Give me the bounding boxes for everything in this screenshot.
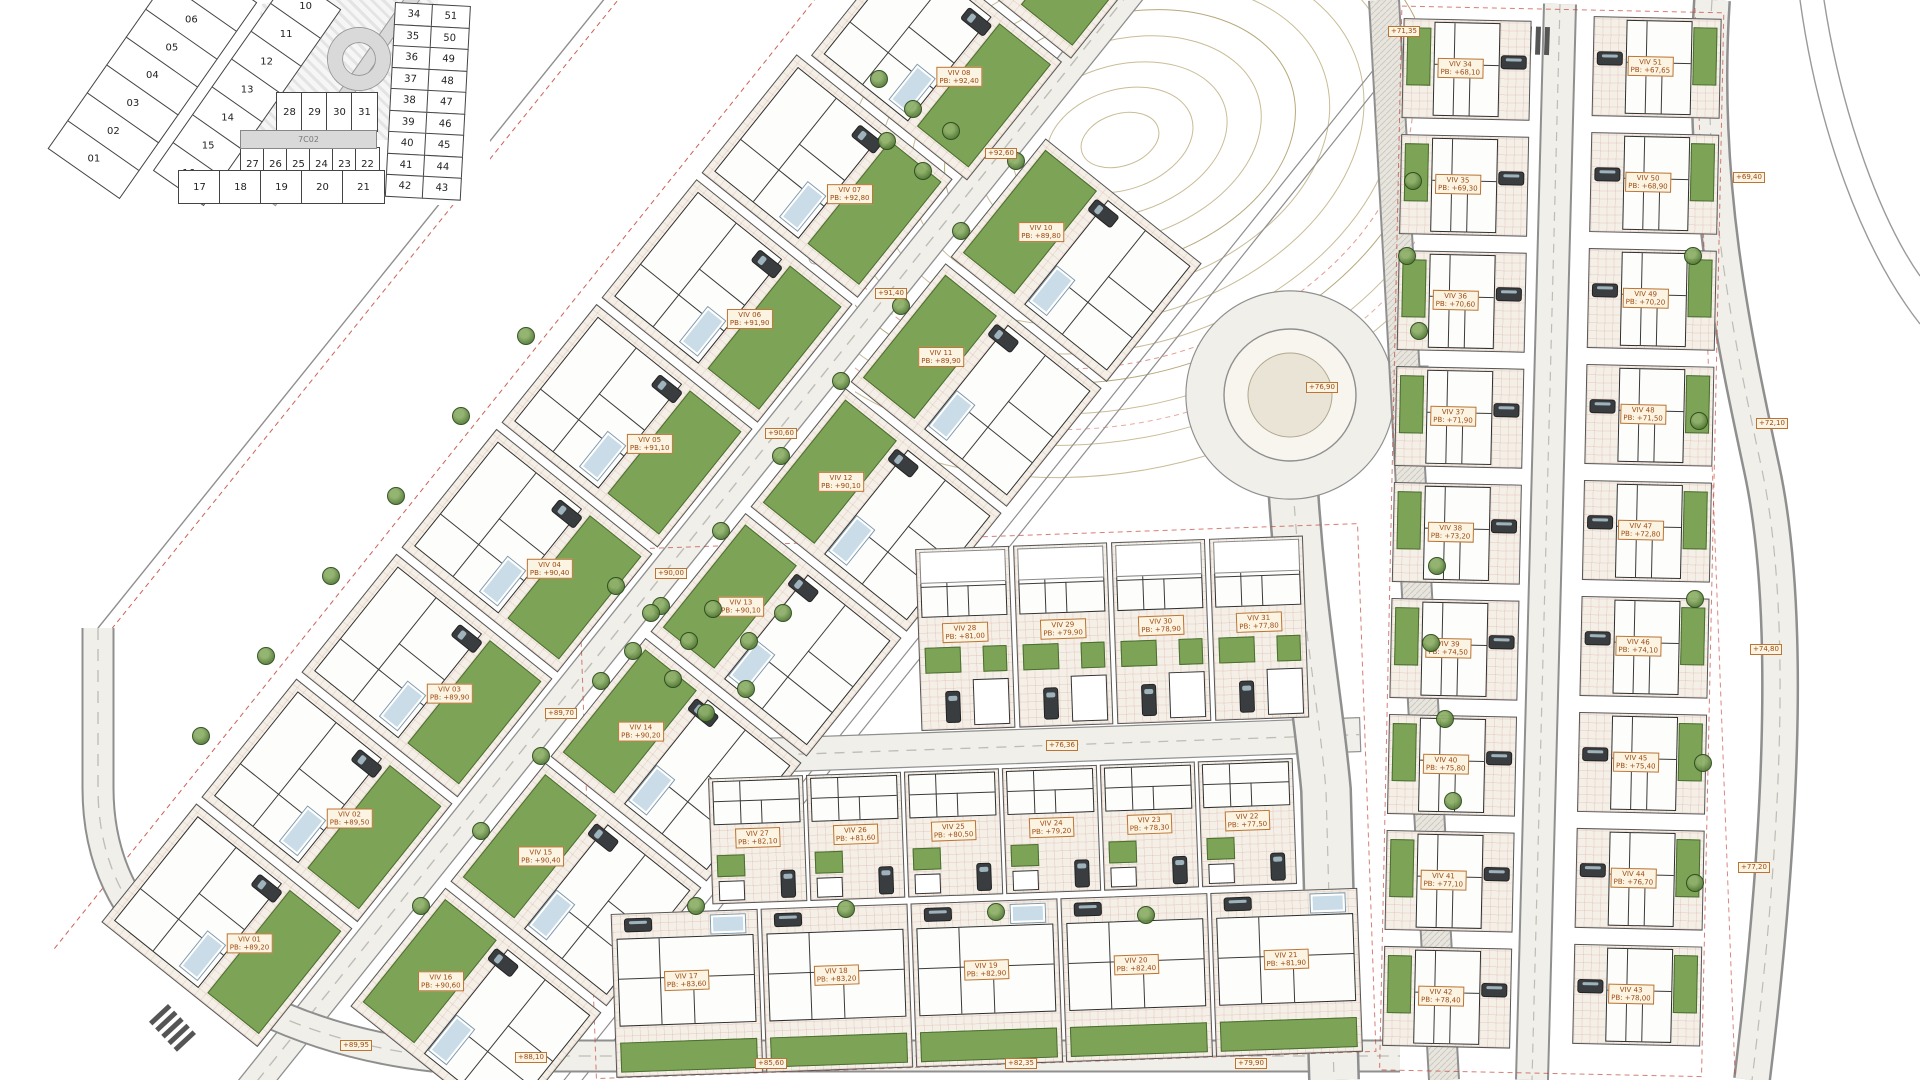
villa-elevation: PB: +74,10 xyxy=(1618,646,1658,655)
villa-elevation: PB: +79,20 xyxy=(1032,827,1072,836)
villa-label: VIV 34PB: +68,10 xyxy=(1437,58,1483,79)
villa-elevation: PB: +82,10 xyxy=(738,837,778,846)
tree-icon xyxy=(322,567,340,585)
car-icon xyxy=(1496,287,1522,302)
tree-icon xyxy=(952,222,970,240)
car-icon xyxy=(1493,403,1519,418)
villa-elevation: PB: +90,20 xyxy=(621,732,661,740)
villa-label: VIV 10PB: +89,80 xyxy=(1018,222,1064,242)
car-icon xyxy=(1597,51,1623,66)
tree-icon xyxy=(772,447,790,465)
villa-label: VIV 22PB: +77,50 xyxy=(1224,810,1270,832)
car-icon xyxy=(1587,515,1613,530)
tree-icon xyxy=(942,122,960,140)
villa-building xyxy=(1104,765,1192,812)
villa-card: VIV 29PB: +79,90 xyxy=(1013,542,1113,727)
villa-label: VIV 08PB: +92,40 xyxy=(936,67,982,87)
tree-icon xyxy=(892,297,910,315)
tree-icon xyxy=(1444,792,1462,810)
villa-label: VIV 13PB: +90,10 xyxy=(718,597,764,617)
villa-elevation: PB: +90,40 xyxy=(530,569,570,577)
road-elevation-tag: +90,00 xyxy=(655,568,687,579)
villa-garden xyxy=(1011,844,1040,867)
tree-icon xyxy=(452,407,470,425)
villa-label: VIV 01PB: +89,20 xyxy=(227,933,273,953)
tree-icon xyxy=(704,600,722,618)
villa-name: VIV 08 xyxy=(939,69,979,77)
villa-garden xyxy=(1070,1022,1208,1057)
villa-label: VIV 14PB: +90,20 xyxy=(618,722,664,742)
villa-garden xyxy=(620,1038,758,1073)
tree-icon xyxy=(740,632,758,650)
tree-icon xyxy=(687,897,705,915)
villa-card: VIV 18PB: +83,20 xyxy=(761,904,914,1073)
key-plan-lot: 42 xyxy=(385,174,425,199)
villa-elevation: PB: +78,00 xyxy=(1611,994,1651,1003)
villa-garden xyxy=(815,851,844,874)
villa-garden xyxy=(983,645,1008,672)
lot-number: 11 xyxy=(280,29,293,40)
villa-name: VIV 12 xyxy=(821,474,861,482)
villa-garden xyxy=(913,847,942,870)
villa-label: VIV 07PB: +92,80 xyxy=(827,184,873,204)
car-icon xyxy=(1486,751,1512,766)
tree-icon xyxy=(1428,557,1446,575)
villa-garden xyxy=(1023,643,1060,670)
villa-card: VIV 47PB: +72,80 xyxy=(1582,480,1712,583)
key-plan-road-loop xyxy=(328,28,390,90)
villa-garden xyxy=(1206,837,1235,860)
car-icon xyxy=(1074,902,1102,917)
villa-label: VIV 48PB: +71,50 xyxy=(1620,404,1666,425)
villa-name: VIV 06 xyxy=(730,311,770,319)
villa-pool xyxy=(711,914,746,933)
car-icon xyxy=(1223,897,1251,912)
villa-elevation: PB: +83,60 xyxy=(667,980,707,989)
villa-card: VIV 43PB: +78,00 xyxy=(1572,944,1702,1047)
villa-label: VIV 15PB: +90,40 xyxy=(518,846,564,866)
car-icon xyxy=(1172,856,1188,885)
villa-elevation: PB: +90,60 xyxy=(421,981,461,989)
key-plan-lot: 29 xyxy=(301,92,328,132)
tree-icon xyxy=(878,132,896,150)
villa-elevation: PB: +92,80 xyxy=(830,194,870,202)
villa-card: VIV 46PB: +74,10 xyxy=(1579,596,1709,699)
key-plan-lot: 21 xyxy=(342,170,385,204)
car-icon xyxy=(1074,859,1090,888)
tree-icon xyxy=(832,372,850,390)
villa-name: VIV 01 xyxy=(230,935,270,943)
car-icon xyxy=(878,866,894,895)
villa-building xyxy=(1202,761,1290,808)
road-elevation-tag: +88,10 xyxy=(515,1052,547,1063)
villa-label: VIV 26PB: +81,60 xyxy=(832,824,878,846)
villa-elevation: PB: +69,30 xyxy=(1438,184,1478,193)
villa-garage xyxy=(1208,863,1235,884)
villa-label: VIV 27PB: +82,10 xyxy=(735,827,781,849)
villa-label: VIV 05PB: +91,10 xyxy=(627,434,673,454)
tree-icon xyxy=(1436,710,1454,728)
villa-garage xyxy=(817,877,844,898)
road-elevation-tag: +91,40 xyxy=(875,288,907,299)
villa-card: VIV 31PB: +77,80 xyxy=(1209,536,1309,721)
villa-label: VIV 21PB: +81,90 xyxy=(1263,949,1309,971)
villa-elevation: PB: +77,50 xyxy=(1228,820,1268,829)
villa-label: VIV 24PB: +79,20 xyxy=(1028,817,1074,839)
lot-number: 06 xyxy=(185,14,198,25)
lot-number: 02 xyxy=(107,126,120,137)
villa-label: VIV 19PB: +82,90 xyxy=(963,959,1009,981)
villa-elevation: PB: +92,40 xyxy=(939,77,979,85)
key-plan-lot: 20 xyxy=(301,170,344,204)
tree-icon xyxy=(607,577,625,595)
villa-card: VIV 50PB: +68,90 xyxy=(1589,132,1719,235)
tree-icon xyxy=(712,522,730,540)
villa-elevation: PB: +75,40 xyxy=(1616,762,1656,771)
villa-label: VIV 29PB: +79,90 xyxy=(1040,618,1086,640)
villa-elevation: PB: +89,20 xyxy=(230,943,270,951)
villa-name: VIV 11 xyxy=(921,349,961,357)
villa-label: VIV 47PB: +72,80 xyxy=(1618,520,1664,541)
villa-garage xyxy=(1012,870,1039,891)
road-elevation-tag: +89,70 xyxy=(545,708,577,719)
villa-label: VIV 45PB: +75,40 xyxy=(1613,752,1659,773)
villa-label: VIV 36PB: +70,60 xyxy=(1433,290,1479,311)
villa-elevation: PB: +83,20 xyxy=(817,974,857,983)
key-plan-lot: 28 xyxy=(276,92,303,132)
villa-garden xyxy=(1080,642,1105,669)
villa-label: VIV 40PB: +75,80 xyxy=(1423,754,1469,775)
villa-garage xyxy=(1267,668,1305,715)
villa-card: VIV 25PB: +80,50 xyxy=(904,768,1003,897)
key-plan-lot: 43 xyxy=(422,176,462,201)
villa-garden xyxy=(770,1033,908,1068)
car-icon xyxy=(1589,399,1615,414)
villa-garage xyxy=(719,880,746,901)
villa-name: VIV 03 xyxy=(430,686,470,694)
car-icon xyxy=(924,907,952,922)
villa-pergola xyxy=(1213,539,1300,574)
villa-elevation: PB: +81,60 xyxy=(836,834,876,843)
villa-elevation: PB: +67,65 xyxy=(1631,66,1671,75)
tree-icon xyxy=(914,162,932,180)
tree-icon xyxy=(1410,322,1428,340)
villa-label: VIV 03PB: +89,90 xyxy=(427,684,473,704)
villa-garden xyxy=(1220,1017,1358,1052)
car-icon xyxy=(1484,867,1510,882)
car-icon xyxy=(1491,519,1517,534)
tree-icon xyxy=(592,672,610,690)
villa-card: VIV 42PB: +78,40 xyxy=(1382,946,1512,1049)
car-icon xyxy=(1481,983,1507,998)
villa-elevation: PB: +89,50 xyxy=(330,819,370,827)
villa-pool xyxy=(1011,904,1046,923)
villa-garage xyxy=(973,678,1011,725)
villa-elevation: PB: +68,90 xyxy=(1628,182,1668,191)
villa-elevation: PB: +78,90 xyxy=(1141,625,1181,634)
villa-garden xyxy=(1692,27,1717,85)
villa-label: VIV 50PB: +68,90 xyxy=(1625,172,1671,193)
villa-label: VIV 31PB: +77,80 xyxy=(1236,611,1282,633)
key-plan-lot: 17 xyxy=(178,170,221,204)
villa-elevation: PB: +77,10 xyxy=(1423,880,1463,889)
villa-label: VIV 28PB: +81,00 xyxy=(942,622,988,644)
villa-name: VIV 16 xyxy=(421,973,461,981)
key-plan-road-label: 7C02 xyxy=(240,130,377,149)
villa-name: VIV 10 xyxy=(1021,224,1061,232)
lot-number: 12 xyxy=(260,57,273,68)
villa-card: VIV 41PB: +77,10 xyxy=(1385,830,1515,933)
villa-name: VIV 05 xyxy=(630,436,670,444)
villa-card: VIV 30PB: +78,90 xyxy=(1111,539,1211,724)
villa-name: VIV 02 xyxy=(330,811,370,819)
villa-card: VIV 34PB: +68,10 xyxy=(1402,18,1532,121)
villa-garden xyxy=(1397,491,1422,549)
tree-icon xyxy=(837,900,855,918)
villa-elevation: PB: +90,10 xyxy=(821,482,861,490)
villa-label: VIV 23PB: +78,30 xyxy=(1126,813,1172,835)
villa-label: VIV 38PB: +73,20 xyxy=(1428,522,1474,543)
villa-label: VIV 49PB: +70,20 xyxy=(1623,288,1669,309)
villa-card: VIV 23PB: +78,30 xyxy=(1100,761,1199,890)
villa-garden xyxy=(1683,491,1708,549)
site-plan: 01020304050607 16151413121110 2829303127… xyxy=(0,0,1920,1080)
tree-icon xyxy=(642,604,660,622)
car-icon xyxy=(774,912,802,927)
villa-elevation: PB: +90,10 xyxy=(721,607,761,615)
villa-label: VIV 51PB: +67,65 xyxy=(1627,56,1673,77)
road-elevation-tag: +89,95 xyxy=(340,1040,372,1051)
villa-label: VIV 12PB: +90,10 xyxy=(818,472,864,492)
villa-elevation: PB: +89,80 xyxy=(1021,232,1061,240)
villa-label: VIV 16PB: +90,60 xyxy=(418,971,464,991)
road-elevation-tag: +92,60 xyxy=(985,148,1017,159)
car-icon xyxy=(1577,979,1603,994)
villa-elevation: PB: +75,80 xyxy=(1426,764,1466,773)
roundabout-elevation-tag: +76,90 xyxy=(1306,382,1338,393)
tree-icon xyxy=(664,670,682,688)
villa-label: VIV 20PB: +82,40 xyxy=(1113,954,1159,976)
villa-garden xyxy=(1687,259,1712,317)
tree-icon xyxy=(987,903,1005,921)
lot-number: 14 xyxy=(221,112,234,123)
road-elevation-tag: +76,36 xyxy=(1046,740,1078,751)
lot-number: 03 xyxy=(127,98,140,109)
villa-garden xyxy=(1401,259,1426,317)
road-elevation-tag: +90,60 xyxy=(765,428,797,439)
car-icon xyxy=(976,863,992,892)
villa-name: VIV 07 xyxy=(830,186,870,194)
villa-label: VIV 37PB: +71,90 xyxy=(1430,406,1476,427)
villa-garden xyxy=(1399,375,1424,433)
lot-number: 04 xyxy=(146,70,159,81)
villa-garage xyxy=(1071,674,1109,721)
villa-elevation: PB: +68,10 xyxy=(1440,68,1480,77)
villa-label: VIV 42PB: +78,40 xyxy=(1418,986,1464,1007)
road-elevation-tag: +77,20 xyxy=(1738,862,1770,873)
villa-elevation: PB: +90,40 xyxy=(521,856,561,864)
car-icon xyxy=(1239,680,1255,713)
villa-name: VIV 15 xyxy=(521,848,561,856)
villa-garage xyxy=(914,873,941,894)
car-icon xyxy=(1501,55,1527,70)
villa-pool xyxy=(1310,893,1345,912)
villa-garden xyxy=(717,854,746,877)
key-plan-lot: 31 xyxy=(351,92,378,132)
villa-elevation: PB: +70,60 xyxy=(1436,300,1476,309)
villa-card: VIV 45PB: +75,40 xyxy=(1577,712,1707,815)
car-icon xyxy=(1594,167,1620,182)
villa-elevation: PB: +82,90 xyxy=(967,969,1007,978)
car-icon xyxy=(1582,747,1608,762)
key-plan: 01020304050607 16151413121110 2829303127… xyxy=(90,0,490,205)
villa-label: VIV 44PB: +76,70 xyxy=(1610,868,1656,889)
villa-garden xyxy=(1389,839,1414,897)
tree-icon xyxy=(257,647,275,665)
villa-elevation: PB: +79,90 xyxy=(1043,628,1083,637)
villa-card: VIV 28PB: +81,00 xyxy=(915,546,1015,731)
villa-label: VIV 35PB: +69,30 xyxy=(1435,174,1481,195)
villa-card: VIV 27PB: +82,10 xyxy=(708,775,807,904)
villa-building xyxy=(712,778,800,825)
lot-number: 13 xyxy=(241,85,254,96)
road-elevation-tag: +71,35 xyxy=(1388,26,1420,37)
villa-pergola xyxy=(1115,542,1202,577)
villa-garden xyxy=(925,647,962,674)
villa-garage xyxy=(1169,671,1207,718)
car-icon xyxy=(1498,171,1524,186)
road-elevation-tag: +85,60 xyxy=(755,1058,787,1069)
villa-garden xyxy=(1394,607,1419,665)
villa-card: VIV 22PB: +77,50 xyxy=(1198,758,1297,887)
car-icon xyxy=(1580,863,1606,878)
villa-elevation: PB: +77,80 xyxy=(1239,621,1279,630)
tree-icon xyxy=(1398,247,1416,265)
villa-card: VIV 37PB: +71,90 xyxy=(1394,366,1524,469)
road-elevation-tag: +79,90 xyxy=(1235,1058,1267,1069)
key-plan-lot: 19 xyxy=(260,170,303,204)
villa-elevation: PB: +81,90 xyxy=(1266,959,1306,968)
villa-card: VIV 26PB: +81,60 xyxy=(806,772,905,901)
tree-icon xyxy=(1690,412,1708,430)
villa-label: VIV 25PB: +80,50 xyxy=(930,820,976,842)
road-elevation-tag: +74,80 xyxy=(1750,644,1782,655)
villa-card: VIV 19PB: +82,90 xyxy=(910,898,1063,1067)
villa-card: VIV 39PB: +74,50 xyxy=(1389,598,1519,701)
tree-icon xyxy=(904,100,922,118)
villa-elevation: PB: +78,30 xyxy=(1130,823,1170,832)
villa-card: VIV 24PB: +79,20 xyxy=(1002,765,1101,894)
villa-label: VIV 11PB: +89,90 xyxy=(918,347,964,367)
villa-garden xyxy=(1387,955,1412,1013)
tree-icon xyxy=(1694,754,1712,772)
villa-label: VIV 17PB: +83,60 xyxy=(663,970,709,992)
villa-label: VIV 30PB: +78,90 xyxy=(1138,615,1184,637)
villa-elevation: PB: +73,20 xyxy=(1431,532,1471,541)
villa-garden xyxy=(1690,143,1715,201)
car-icon xyxy=(1141,684,1157,717)
villa-card: VIV 51PB: +67,65 xyxy=(1592,16,1722,119)
villa-elevation: PB: +81,00 xyxy=(945,632,985,641)
lot-number: 15 xyxy=(202,140,215,151)
villa-garden xyxy=(1276,635,1301,662)
tree-icon xyxy=(192,727,210,745)
villa-garden xyxy=(920,1027,1058,1062)
villa-label: VIV 43PB: +78,00 xyxy=(1608,984,1654,1005)
villa-card: VIV 44PB: +76,70 xyxy=(1575,828,1705,931)
villa-name: VIV 04 xyxy=(530,561,570,569)
tree-icon xyxy=(387,487,405,505)
road-elevation-tag: +69,40 xyxy=(1733,172,1765,183)
tree-icon xyxy=(870,70,888,88)
villa-elevation: PB: +91,10 xyxy=(630,444,670,452)
villa-building xyxy=(908,771,996,818)
tree-icon xyxy=(1422,634,1440,652)
tree-icon xyxy=(737,680,755,698)
car-icon xyxy=(624,918,652,933)
tree-icon xyxy=(697,704,715,722)
villa-card: VIV 38PB: +73,20 xyxy=(1392,482,1522,585)
tree-icon xyxy=(472,822,490,840)
villa-name: VIV 14 xyxy=(621,724,661,732)
villa-elevation: PB: +82,40 xyxy=(1117,964,1157,973)
villa-building xyxy=(810,775,898,822)
villa-label: VIV 41PB: +77,10 xyxy=(1420,870,1466,891)
car-icon xyxy=(1043,687,1059,720)
car-icon xyxy=(945,691,961,724)
villa-label: VIV 04PB: +90,40 xyxy=(527,559,573,579)
villa-elevation: PB: +71,50 xyxy=(1623,414,1663,423)
villa-card: VIV 21PB: +81,90 xyxy=(1210,888,1363,1057)
villa-elevation: PB: +78,40 xyxy=(1421,996,1461,1005)
villa-garden xyxy=(1392,723,1417,781)
villa-garden xyxy=(1680,607,1705,665)
villa-garden xyxy=(1218,636,1255,663)
lot-number: 10 xyxy=(299,1,312,12)
tree-icon xyxy=(1404,172,1422,190)
villa-elevation: PB: +89,90 xyxy=(921,357,961,365)
villa-building xyxy=(1006,768,1094,815)
tree-icon xyxy=(532,747,550,765)
road-elevation-tag: +82,35 xyxy=(1005,1058,1037,1069)
tree-icon xyxy=(624,642,642,660)
tree-icon xyxy=(1686,874,1704,892)
lot-number: 05 xyxy=(166,42,179,53)
car-icon xyxy=(1488,635,1514,650)
villa-elevation: PB: +72,80 xyxy=(1621,530,1661,539)
car-icon xyxy=(1270,852,1286,881)
tree-icon xyxy=(1686,590,1704,608)
lot-number: 01 xyxy=(88,154,101,165)
key-plan-lot: 30 xyxy=(326,92,353,132)
car-icon xyxy=(1592,283,1618,298)
tree-icon xyxy=(774,604,792,622)
villa-garden xyxy=(1178,638,1203,665)
villa-garage xyxy=(1110,867,1137,888)
villa-card: VIV 17PB: +83,60 xyxy=(611,909,764,1078)
car-icon xyxy=(780,869,796,898)
villa-label: VIV 06PB: +91,90 xyxy=(727,309,773,329)
villa-elevation: PB: +91,90 xyxy=(730,319,770,327)
villa-pergola xyxy=(1017,546,1104,581)
villa-garden xyxy=(1108,841,1137,864)
villa-elevation: PB: +71,90 xyxy=(1433,416,1473,425)
villa-elevation: PB: +70,20 xyxy=(1626,298,1666,307)
villa-garden xyxy=(1120,640,1157,667)
villa-label: VIV 02PB: +89,50 xyxy=(327,809,373,829)
road-elevation-tag: +72,10 xyxy=(1756,418,1788,429)
villa-name: VIV 13 xyxy=(721,599,761,607)
